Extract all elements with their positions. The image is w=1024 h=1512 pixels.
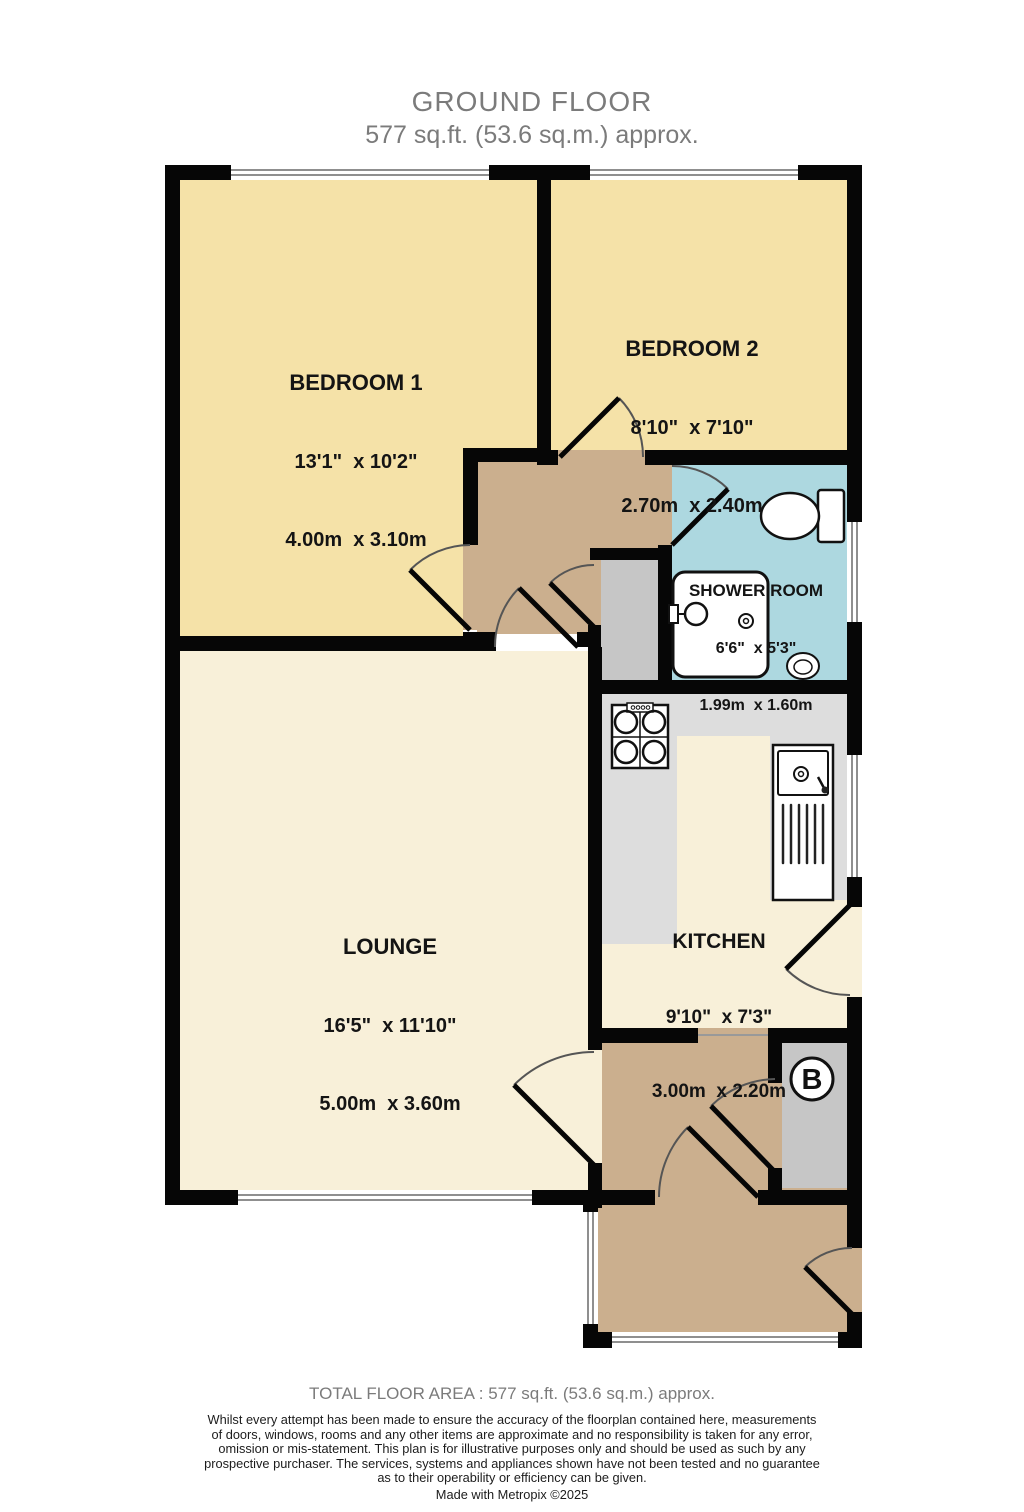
lounge-metric: 5.00m x 3.60m <box>240 1092 540 1116</box>
kitchen-name: KITCHEN <box>594 929 844 955</box>
wall-right-1 <box>847 165 862 522</box>
disclaimer-line: Whilst every attempt has been made to en… <box>112 1413 912 1428</box>
wall-top-middle <box>489 165 590 180</box>
wall-cupboard-stub <box>588 625 601 647</box>
kitchen-label: KITCHEN 9'10" x 7'3" 3.00m x 2.20m <box>594 878 844 1155</box>
wall-bedroom1-bottom <box>165 636 485 651</box>
bedroom1-metric: 4.00m x 3.10m <box>206 528 506 552</box>
disclaimer-line: as to their operability or efficiency ca… <box>112 1471 912 1486</box>
disclaimer-line: prospective purchaser. The services, sys… <box>112 1457 912 1472</box>
porch-floor <box>598 1205 847 1332</box>
hall-porch-threshold <box>655 1190 758 1205</box>
bedroom2-label: BEDROOM 2 8'10" x 7'10" 2.70m x 2.40m <box>542 282 842 572</box>
wall-left <box>165 165 180 1205</box>
shower-room-label: SHOWER ROOM 6'6" x 5'3" 1.99m x 1.60m <box>658 542 854 755</box>
disclaimer-line: omission or mis-statement. This plan is … <box>112 1442 912 1457</box>
floor-area: 577 sq.ft. (53.6 sq.m.) approx. <box>212 121 852 150</box>
bedroom2-metric: 2.70m x 2.40m <box>542 494 842 518</box>
lounge-name: LOUNGE <box>240 934 540 961</box>
wall-rearhall-bottom-b <box>758 1190 862 1205</box>
kitchen-metric: 3.00m x 2.20m <box>594 1080 844 1103</box>
disclaimer-line: of doors, windows, rooms and any other i… <box>112 1428 912 1443</box>
shower-imperial: 6'6" x 5'3" <box>658 640 854 658</box>
lounge-label: LOUNGE 16'5" x 11'10" 5.00m x 3.60m <box>240 880 540 1170</box>
lounge-window <box>238 1190 532 1205</box>
kitchen-imperial: 9'10" x 7'3" <box>594 1006 844 1029</box>
bedroom2-window <box>590 165 798 180</box>
footer: TOTAL FLOOR AREA : 577 sq.ft. (53.6 sq.m… <box>112 1384 912 1502</box>
kitchen-window <box>847 755 862 877</box>
floor-name: GROUND FLOOR <box>212 86 852 118</box>
wall-hall-bottom-a <box>463 632 496 651</box>
porch-left-window <box>583 1212 598 1324</box>
lounge-imperial: 16'5" x 11'10" <box>240 1014 540 1038</box>
bedroom1-imperial: 13'1" x 10'2" <box>206 450 506 474</box>
total-floor-area: TOTAL FLOOR AREA : 577 sq.ft. (53.6 sq.m… <box>112 1384 912 1404</box>
disclaimer: Whilst every attempt has been made to en… <box>112 1413 912 1486</box>
hall-cupboard-floor <box>601 560 658 680</box>
kitchen-counter-right <box>770 736 847 900</box>
floorplan-page: GROUND FLOOR 577 sq.ft. (53.6 sq.m.) app… <box>0 0 1024 1512</box>
kitchen-backdoor-threshold <box>847 907 862 997</box>
bedroom2-name: BEDROOM 2 <box>542 336 842 363</box>
wall-boiler-left-b <box>768 1168 782 1192</box>
bedroom2-imperial: 8'10" x 7'10" <box>542 416 842 440</box>
credit: Made with Metropix ©2025 <box>112 1487 912 1502</box>
bedroom1-label: BEDROOM 1 13'1" x 10'2" 4.00m x 3.10m <box>206 316 506 606</box>
bedroom1-name: BEDROOM 1 <box>206 370 506 397</box>
shower-metric: 1.99m x 1.60m <box>658 697 854 715</box>
shower-name: SHOWER ROOM <box>658 581 854 601</box>
page-title: GROUND FLOOR 577 sq.ft. (53.6 sq.m.) app… <box>212 86 852 150</box>
porch-bottom-window <box>612 1332 838 1348</box>
front-door-threshold <box>847 1248 862 1312</box>
wall-right-3 <box>847 877 862 907</box>
bedroom1-window <box>231 165 489 180</box>
